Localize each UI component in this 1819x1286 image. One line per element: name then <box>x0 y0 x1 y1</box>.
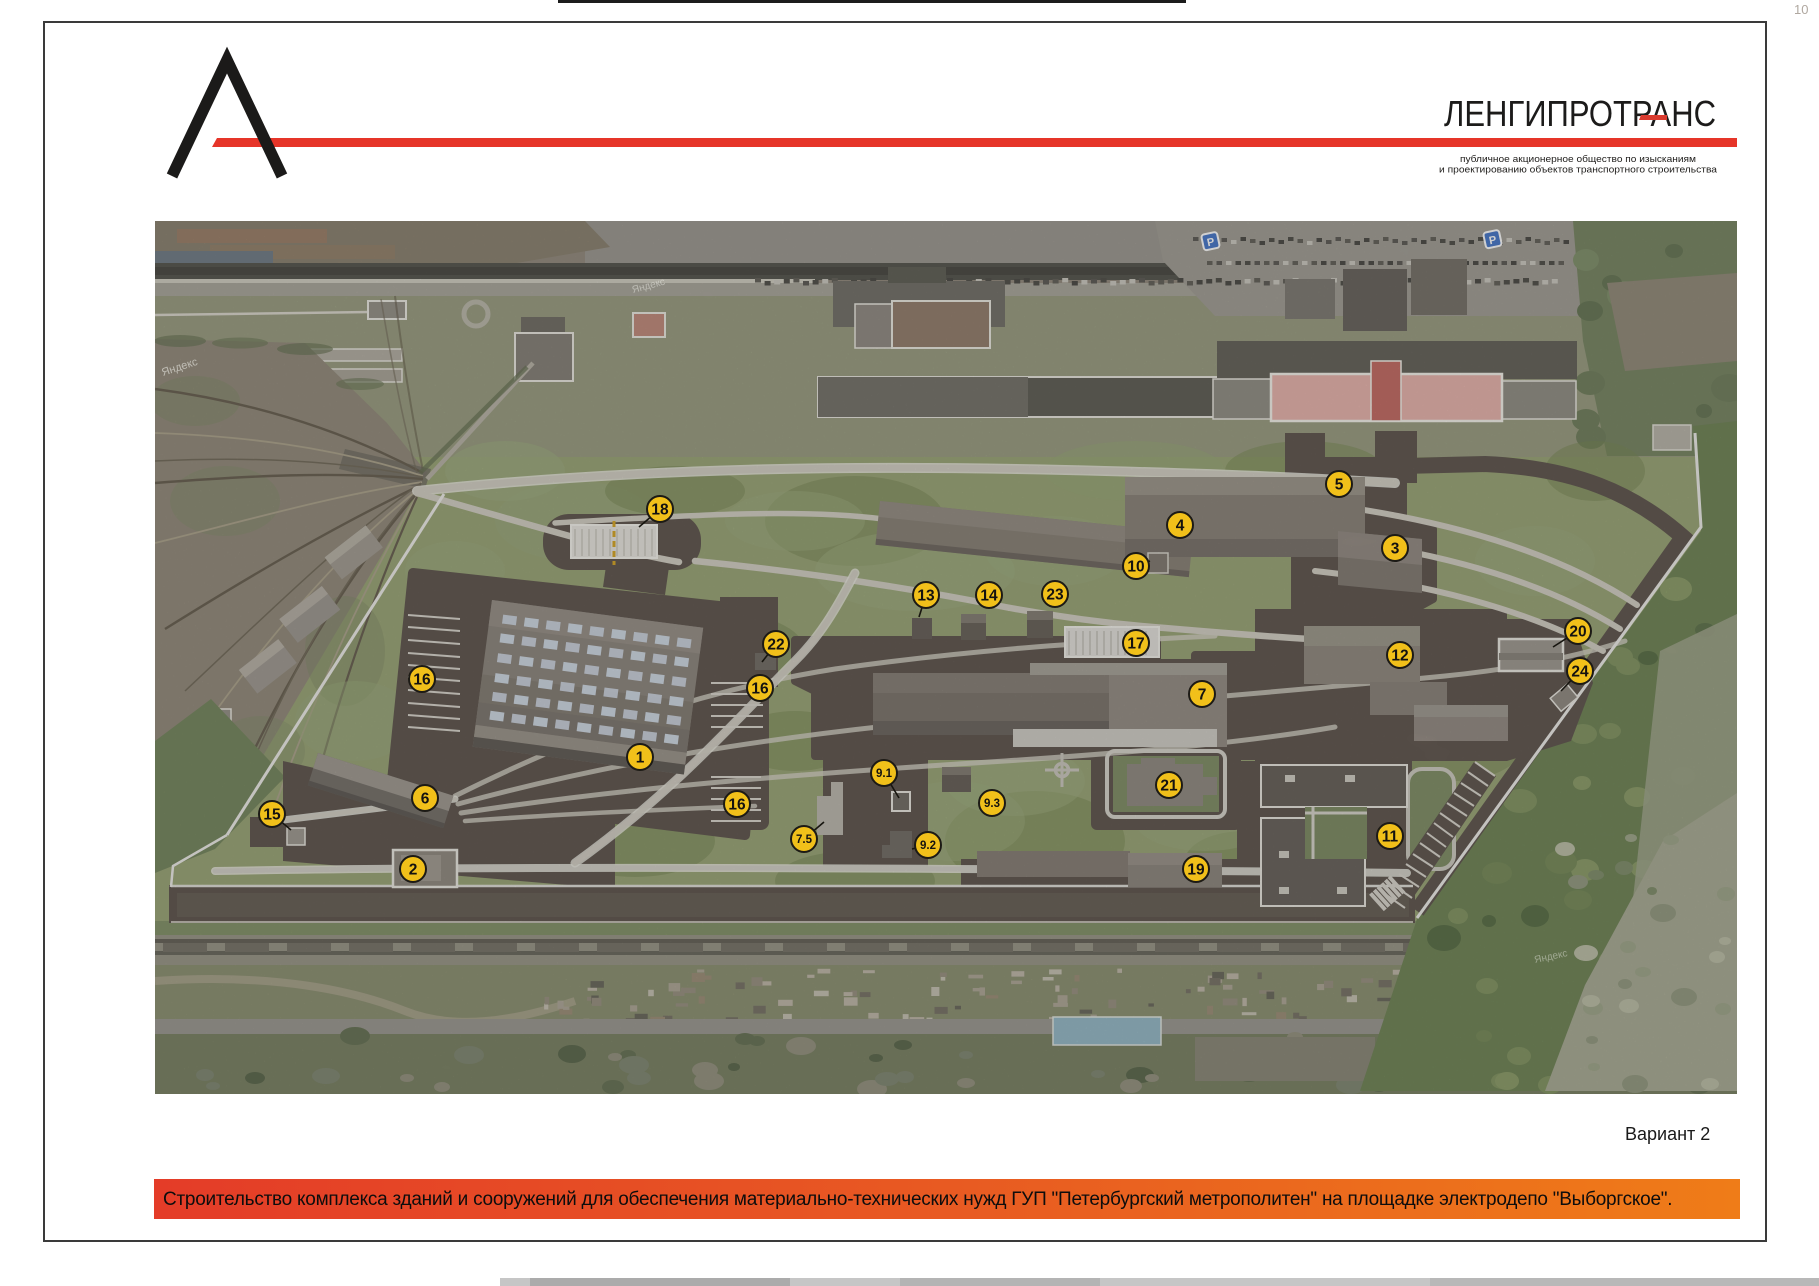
svg-text:18: 18 <box>651 502 669 519</box>
svg-text:16: 16 <box>413 672 431 689</box>
svg-text:публичное акционерное общество: публичное акционерное общество по изыска… <box>1460 154 1696 165</box>
svg-text:7: 7 <box>1198 687 1207 704</box>
svg-text:24: 24 <box>1571 664 1589 681</box>
svg-text:10: 10 <box>1127 559 1144 576</box>
svg-text:9.3: 9.3 <box>984 798 1000 810</box>
svg-text:ЛЕНГИПРОТРАНС: ЛЕНГИПРОТРАНС <box>1444 93 1716 134</box>
svg-text:14: 14 <box>980 588 998 605</box>
svg-text:12: 12 <box>1391 648 1408 665</box>
svg-text:16: 16 <box>751 681 769 698</box>
svg-text:13: 13 <box>917 588 935 605</box>
svg-text:9.2: 9.2 <box>920 840 936 852</box>
svg-text:1: 1 <box>636 750 645 767</box>
svg-text:20: 20 <box>1569 624 1586 641</box>
svg-text:21: 21 <box>1160 778 1178 795</box>
svg-text:2: 2 <box>409 862 418 879</box>
svg-text:11: 11 <box>1382 829 1399 846</box>
svg-text:9.1: 9.1 <box>876 768 893 780</box>
svg-text:3: 3 <box>1391 541 1400 558</box>
svg-text:17: 17 <box>1127 636 1144 653</box>
svg-text:и проектированию объектов тран: и проектированию объектов транспортного … <box>1439 165 1718 176</box>
svg-text:5: 5 <box>1335 477 1344 494</box>
svg-text:4: 4 <box>1176 518 1185 535</box>
svg-text:19: 19 <box>1187 862 1205 879</box>
svg-text:6: 6 <box>421 791 430 808</box>
svg-text:23: 23 <box>1046 587 1064 604</box>
svg-text:7.5: 7.5 <box>796 834 813 846</box>
svg-text:16: 16 <box>728 797 746 814</box>
svg-text:22: 22 <box>767 637 784 654</box>
svg-text:15: 15 <box>263 807 281 824</box>
